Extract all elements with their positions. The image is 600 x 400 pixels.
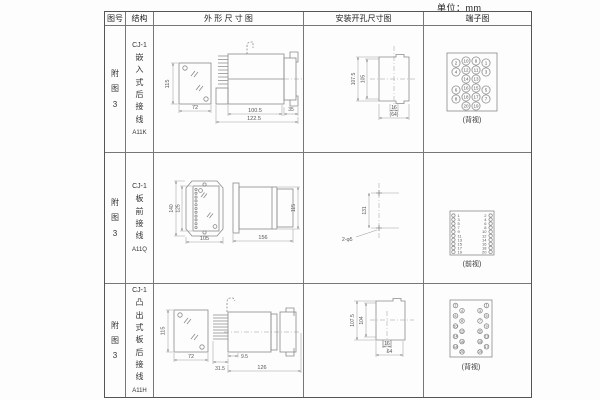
outline-drawing-cell: 115 72 9.5: [154, 284, 304, 397]
terminal-number: 3: [484, 70, 487, 75]
terminal-number: 20: [482, 249, 487, 254]
outline-drawing-a11k: 115 72 100.5: [154, 26, 303, 152]
model-label: CJ-1: [132, 183, 147, 190]
view-label: (背视): [462, 115, 481, 124]
terminal-number: 5: [484, 88, 487, 93]
structure-code-label: A11K: [132, 130, 146, 136]
terminal-circles: 1234567891011121314151617181920: [451, 213, 492, 254]
terminal-diagram-a11h: 2468101214161820135791113151719 (背视): [425, 285, 531, 397]
terminal-diagram-cell: 2468101214161820135791113151719 (背视): [424, 284, 531, 397]
terminal-circle: [451, 238, 454, 241]
terminal-diagram-a11k: 2109141211314136161558181772019 (背视): [425, 26, 531, 152]
terminal-number: 7: [479, 319, 481, 323]
outline-drawing-cell: 140 125 105 156 115: [154, 153, 304, 284]
terminal-number: 19: [457, 249, 462, 254]
dim-label: 16: [391, 105, 397, 111]
header-terminal-diagram: 端子图: [424, 12, 531, 26]
terminal-number: 13: [484, 334, 488, 338]
dim-label: 64: [387, 349, 393, 355]
terminal-circles: 2468101214161820135791113151719: [453, 303, 489, 354]
terminal-number: 1: [485, 303, 487, 307]
terminal-diagram-a11q: 1234567891011121314151617181920 (前视): [425, 153, 531, 283]
structure-label: 凸出式板后接线: [135, 297, 144, 384]
dim-label: 100.5: [248, 108, 262, 114]
terminal-circle: [451, 218, 454, 221]
terminal-number: 8: [454, 97, 457, 102]
dim-label: 35: [288, 107, 294, 113]
header-outline-dims: 外 形 尺 寸 图: [154, 12, 304, 26]
terminal-circle: [451, 250, 454, 253]
mounting-drawing-a11k: 107.5 105 16 (64): [304, 26, 423, 152]
front-view: 115 72: [165, 63, 211, 113]
terminal-number: 15: [478, 339, 482, 343]
terminal-circle: [488, 246, 491, 249]
dim-label: 16: [384, 341, 390, 347]
terminal-number: 17: [473, 95, 479, 100]
terminal-number: 16: [460, 339, 464, 343]
structure-cell: CJ-1 嵌入式后接线 A11K: [126, 26, 154, 153]
front-view: 140 125 105: [169, 181, 223, 244]
terminal-circle: [451, 242, 454, 245]
terminal-circle: [488, 234, 491, 237]
mounting-drawing-cell: 131 2-φ5: [304, 153, 424, 284]
terminal-number: 18: [453, 344, 457, 348]
terminal-circle: [451, 234, 454, 237]
structure-cell: CJ-1 凸出式板后接线 A11H: [126, 284, 154, 397]
terminal-circle: [488, 214, 491, 217]
terminal-number: 11: [478, 329, 482, 333]
header-mounting-dims: 安装开孔尺寸图: [304, 12, 424, 26]
terminal-circle: [451, 226, 454, 229]
dim-label: 125: [176, 204, 182, 213]
dim-label: 115: [161, 326, 167, 335]
terminal-circle: [488, 250, 491, 253]
terminal-number: 9: [485, 324, 487, 328]
terminal-number: 15: [473, 86, 479, 91]
figure-no-cell: 附图3: [105, 153, 126, 284]
view-label: (前视): [462, 259, 481, 268]
side-view: 9.5 31.5 126: [213, 298, 301, 373]
figure-no-label: 附图3: [111, 66, 120, 112]
terminal-number: 10: [463, 59, 469, 64]
view-label: (背视): [461, 362, 480, 371]
terminal-number: 18: [463, 95, 469, 100]
terminal-number: 13: [473, 77, 479, 82]
spec-table: 图号 结构 外 形 尺 寸 图 安装开孔尺寸图 端子图 附图3 CJ-1 嵌入式…: [104, 11, 532, 398]
header-structure: 结构: [126, 12, 154, 26]
terminal-number: 4: [454, 70, 457, 75]
dim-label: 72: [188, 354, 194, 360]
terminal-diagram-cell: 2109141211314136161558181772019 (背视): [424, 26, 531, 153]
dim-label: 105: [200, 236, 209, 242]
mounting-drawing-a11q: 131 2-φ5: [304, 153, 423, 283]
model-label: CJ-1: [132, 287, 147, 294]
terminal-number: 14: [463, 77, 469, 82]
side-view: 100.5 35 122.5: [216, 42, 302, 124]
structure-code-label: A11Q: [132, 247, 147, 253]
terminal-circles: 2109141211314136161558181772019: [451, 57, 489, 110]
terminal-number: 16: [463, 86, 469, 91]
terminal-number: 1: [484, 61, 487, 66]
terminal-number: 19: [473, 104, 479, 109]
terminal-circle: [451, 222, 454, 225]
header-figure-no: 图号: [105, 12, 126, 26]
terminal-number: 4: [461, 308, 463, 312]
terminal-number: 17: [484, 344, 488, 348]
dim-label: 122.5: [247, 116, 261, 122]
dim-label: 115: [291, 204, 297, 212]
terminal-number: 2: [454, 61, 457, 66]
terminal-number: 8: [461, 319, 463, 323]
terminal-number: 5: [485, 314, 487, 318]
side-view: 156 115: [233, 183, 300, 243]
spec-sheet-page: 单位：mm 图号 结构 外 形 尺 寸 图 安装开孔尺寸图 端子图 附图3 CJ…: [0, 0, 600, 400]
structure-label: 嵌入式后接线: [135, 52, 144, 126]
dim-label: 156: [258, 235, 267, 241]
model-label: CJ-1: [132, 42, 147, 49]
terminal-number: 20: [460, 350, 464, 354]
cutout-outline: [376, 298, 405, 340]
terminal-number: 20: [463, 104, 469, 109]
terminal-circle: [488, 242, 491, 245]
outline-drawing-a11h: 115 72 9.5: [154, 285, 303, 397]
structure-label: 板前接线: [135, 193, 144, 243]
dim-label: 107.5: [350, 314, 356, 327]
front-view: 115 72: [161, 310, 209, 362]
dim-label: 115: [165, 80, 171, 89]
terminal-number: 12: [460, 329, 464, 333]
terminal-circle: [488, 226, 491, 229]
structure-code-label: A11H: [132, 388, 147, 394]
mounting-drawing-a11h: 107.5 104 16 64: [304, 285, 423, 397]
dim-label: 107.5: [351, 73, 357, 86]
outline-drawing-cell: 115 72 100.5: [154, 26, 304, 153]
terminal-circle: [488, 238, 491, 241]
dim-label: (64): [390, 112, 399, 118]
terminal-circle: [488, 218, 491, 221]
terminal-number: 7: [484, 97, 487, 102]
terminal-number: 9: [474, 59, 477, 64]
figure-no-cell: 附图3: [105, 284, 126, 397]
terminal-circle: [488, 230, 491, 233]
figure-no-cell: 附图3: [105, 26, 126, 153]
mounting-drawing-cell: 107.5 105 16 (64): [304, 26, 424, 153]
dim-label: 72: [192, 105, 198, 111]
dim-label: 31.5: [215, 366, 225, 372]
figure-no-label: 附图3: [111, 195, 120, 241]
terminal-circle: [488, 222, 491, 225]
terminal-number: 2: [454, 303, 456, 307]
terminal-number: 6: [454, 314, 456, 318]
dim-label: 104: [359, 316, 365, 325]
dim-label: 105: [361, 75, 367, 84]
terminal-circle: [451, 214, 454, 217]
terminal-circle: [451, 246, 454, 249]
terminal-number: 19: [478, 350, 482, 354]
terminal-circle: [451, 230, 454, 233]
terminal-number: 11: [473, 68, 478, 73]
mounting-drawing-cell: 107.5 104 16 64: [304, 284, 424, 397]
terminal-number: 12: [463, 68, 469, 73]
terminal-number: 14: [453, 334, 457, 338]
outline-drawing-a11q: 140 125 105 156 115: [154, 153, 303, 283]
dim-label: 140: [169, 204, 175, 213]
dim-label: 126: [257, 365, 266, 371]
terminal-diagram-cell: 1234567891011121314151617181920 (前视): [424, 153, 531, 284]
structure-cell: CJ-1 板前接线 A11Q: [126, 153, 154, 284]
terminal-number: 6: [454, 88, 457, 93]
hole-size-label: 2-φ5: [342, 237, 353, 243]
terminal-number: 10: [453, 324, 457, 328]
figure-no-label: 附图3: [111, 318, 120, 364]
dim-label: 9.5: [241, 354, 248, 360]
dim-label: 131: [362, 206, 368, 215]
terminal-number: 3: [479, 308, 481, 312]
